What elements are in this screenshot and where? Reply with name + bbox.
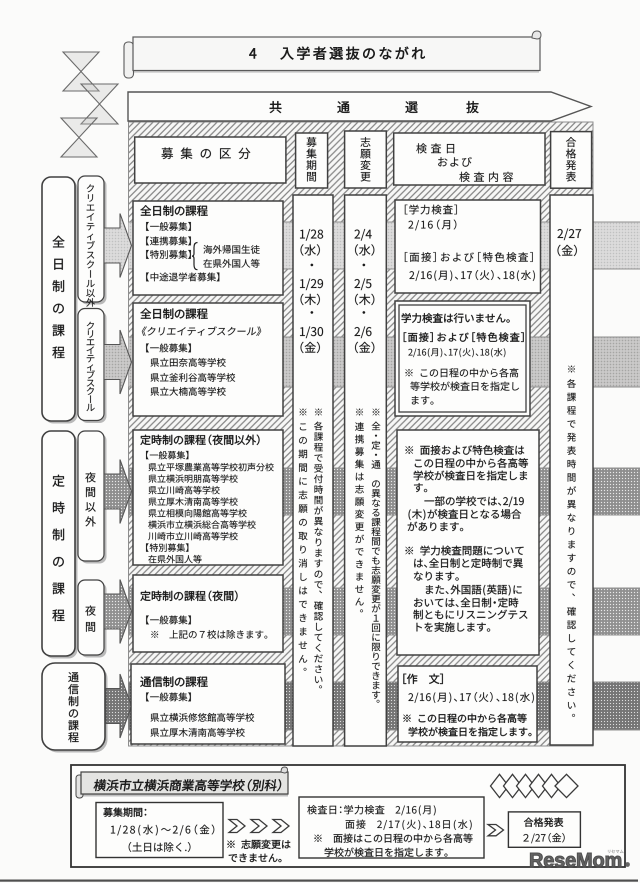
svg-text:ReseMom: ReseMom — [529, 850, 622, 872]
